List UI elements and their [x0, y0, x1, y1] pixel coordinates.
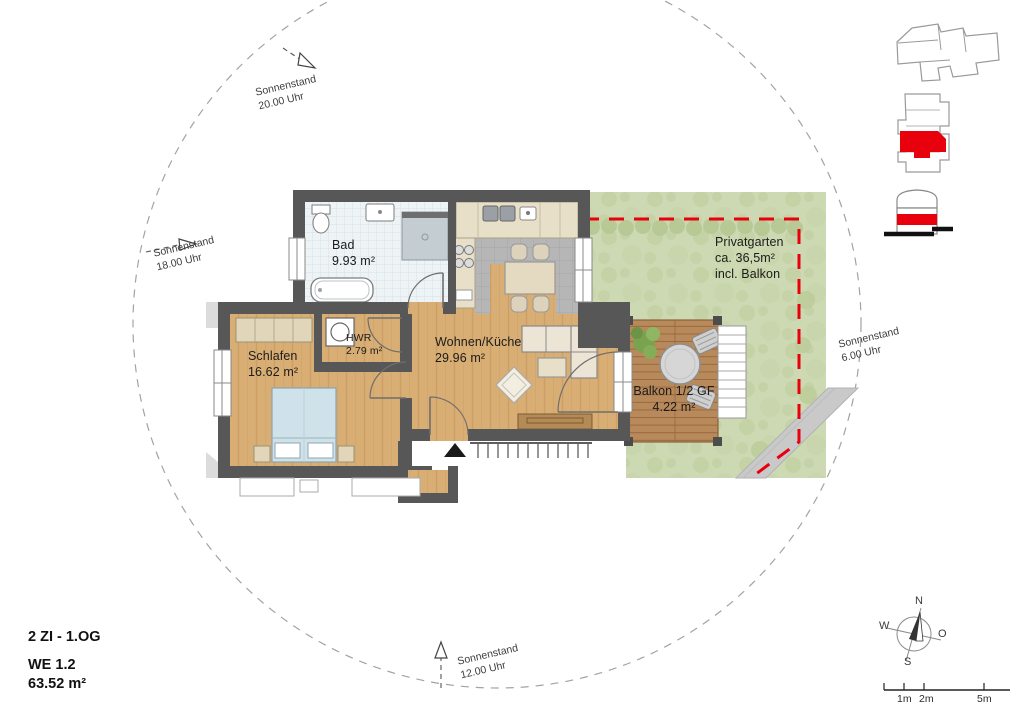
coffee-table: [538, 358, 566, 377]
garden-stairs: [718, 326, 746, 418]
room-name: Wohnen/Küche: [435, 334, 521, 350]
room-label-bad: Bad 9.93 m²: [332, 237, 375, 269]
bedroom-window: [214, 350, 231, 416]
unit-number: WE 1.2: [28, 656, 101, 675]
room-label-hwr: HWR 2.79 m²: [346, 332, 382, 357]
room-name: Privatgarten: [715, 234, 784, 250]
site-plan-building-b: [898, 94, 949, 172]
room-area: 9.93 m²: [332, 253, 375, 269]
wardrobe: [236, 318, 312, 342]
scale-label-5m: 5m: [977, 693, 992, 705]
shower: [402, 212, 448, 260]
bathtub: [311, 278, 373, 302]
room-name: Bad: [332, 237, 375, 253]
sun-arrow-1200: [435, 642, 447, 688]
scale-label-1m: 1m: [897, 693, 912, 705]
site-plan-building-a: [897, 24, 999, 81]
balcony-deck: [624, 316, 723, 446]
compass-south-label: S: [904, 656, 911, 668]
toilet: [312, 205, 330, 233]
title-block: 2 ZI - 1.OG WE 1.2 63.52 m²: [28, 629, 101, 694]
room-label-schlafen: Schlafen 16.62 m²: [248, 348, 298, 380]
total-area: 63.52 m²: [28, 675, 101, 694]
room-label-wohnen-kueche: Wohnen/Küche 29.96 m²: [435, 334, 521, 366]
scale-label-2m: 2m: [919, 693, 934, 705]
compass-rose: [887, 608, 941, 661]
walkway-railing: [470, 443, 592, 458]
room-name: Schlafen: [248, 348, 298, 364]
floor-plan-sheet: Bad 9.93 m² Schlafen 16.62 m² HWR 2.79 m…: [0, 0, 1024, 724]
highlighted-floor: [897, 214, 937, 225]
double-bed: [272, 388, 336, 462]
room-name: HWR: [346, 332, 382, 345]
bath-window: [289, 238, 305, 280]
building-section-icon: [884, 190, 953, 234]
entrance-marker: [444, 443, 466, 457]
compass-north-label: N: [915, 595, 923, 607]
compass-east-label: O: [938, 628, 947, 640]
washbasin: [366, 204, 394, 221]
room-area: 2.79 m²: [346, 345, 382, 358]
compass-west-label: W: [879, 620, 889, 632]
room-label-balkon: Balkon 1/2 GF 4.22 m²: [627, 383, 721, 415]
apartment-type: 2 ZI - 1.OG: [28, 629, 101, 645]
sideboard: [518, 414, 592, 429]
scale-bar: [884, 683, 1010, 690]
room-area: 4.22 m²: [627, 399, 721, 415]
sun-arrow-2000: [283, 48, 315, 68]
room-area: 16.62 m²: [248, 364, 298, 380]
balcony-table: [660, 344, 700, 384]
room-area: 29.96 m²: [435, 350, 521, 366]
room-label-privatgarten: Privatgarten ca. 36,5m² incl. Balkon: [715, 234, 784, 282]
room-name: Balkon 1/2 GF: [627, 383, 721, 399]
room-note: incl. Balkon: [715, 266, 784, 282]
kitchen-window: [575, 238, 592, 302]
room-area: ca. 36,5m²: [715, 250, 784, 266]
